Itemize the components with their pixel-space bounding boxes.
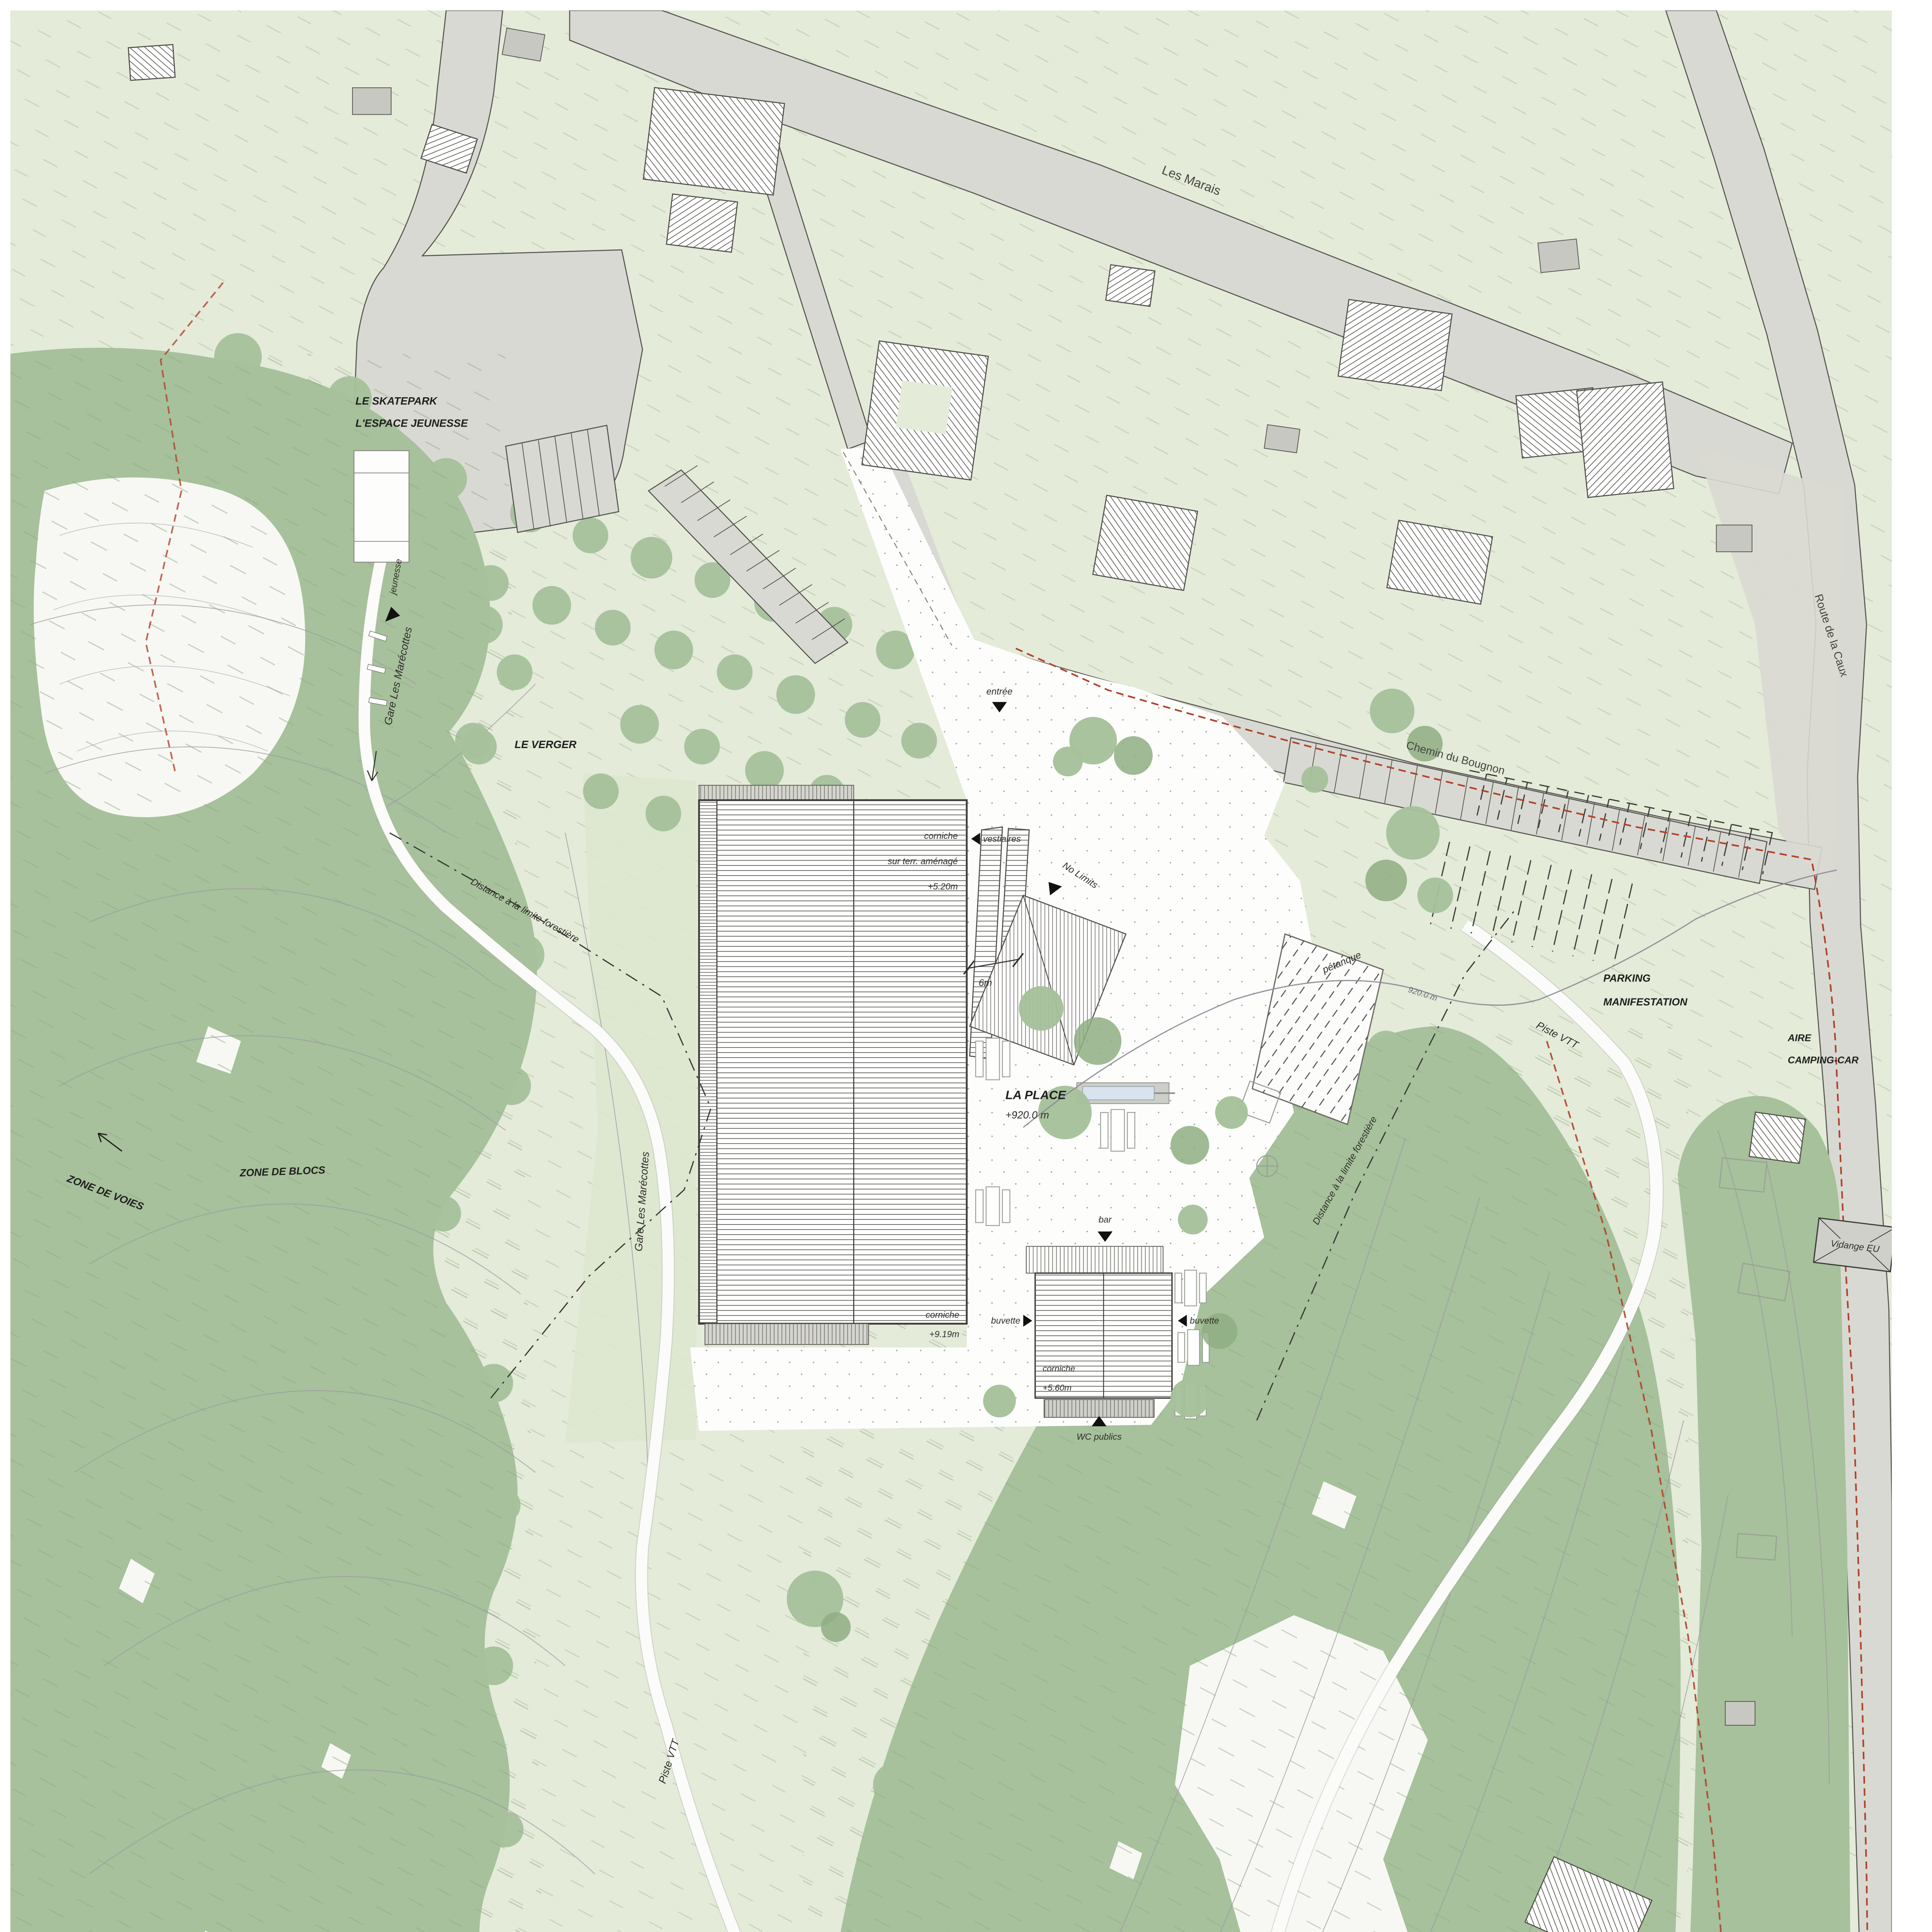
- label-corniche3-1: corniche: [1043, 1364, 1075, 1373]
- label-6m: 6m: [979, 978, 992, 988]
- label-corniche3-2: +5.60m: [1043, 1383, 1071, 1393]
- area-label-aire-2: CAMPING-CAR: [1788, 1055, 1859, 1066]
- skatepark: [354, 451, 409, 562]
- label-buvette-left: buvette: [991, 1316, 1020, 1326]
- area-label-skatepark-2: L'ESPACE JEUNESSE: [355, 417, 468, 429]
- area-label-verger: LE VERGER: [515, 738, 577, 750]
- area-label-la-place-elev: +920.0 m: [1005, 1109, 1049, 1121]
- area-label-la-place: LA PLACE: [1005, 1088, 1066, 1102]
- label-corniche1-1: corniche: [924, 831, 958, 841]
- label-bar: bar: [1099, 1214, 1112, 1225]
- area-label-skatepark-1: LE SKATEPARK: [355, 395, 438, 407]
- fountain: [1077, 1083, 1175, 1104]
- label-entree: entrée: [986, 687, 1013, 697]
- site-plan-map: Les Marais Chemin du Bougnon Route de la…: [0, 0, 1932, 1932]
- label-corniche1-3: +5.20m: [928, 881, 958, 891]
- label-corniche2-2: +9.19m: [929, 1329, 959, 1339]
- area-label-parking-2: MANIFESTATION: [1603, 996, 1687, 1008]
- label-corniche1-2: sur terr. aménagé: [888, 856, 958, 866]
- label-buvette-right: buvette: [1190, 1316, 1219, 1326]
- label-vestiaires: vestiaires: [983, 834, 1021, 844]
- building-main-hall: [699, 785, 967, 1344]
- label-wc-publics: WC publics: [1077, 1432, 1122, 1442]
- area-label-parking-1: PARKING: [1603, 972, 1650, 984]
- area-label-aire-1: AIRE: [1787, 1032, 1812, 1043]
- label-corniche2-1: corniche: [925, 1310, 959, 1320]
